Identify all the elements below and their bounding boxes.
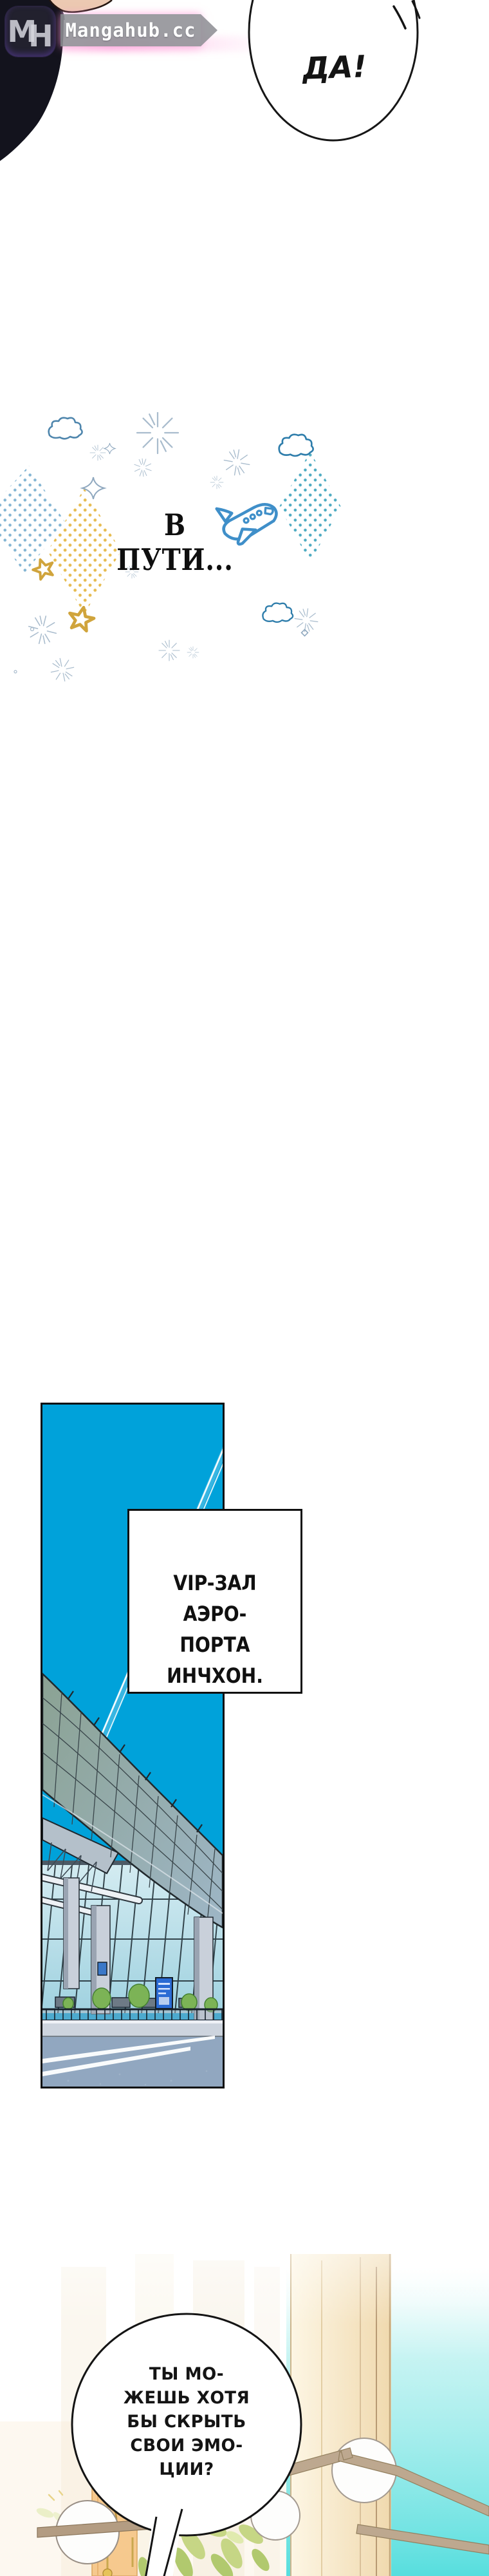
panel-caption-box: VIP-ЗАЛ АЭРО- ПОРТА ИНЧХОН. <box>127 1509 302 1694</box>
airport-scene <box>42 1405 223 2087</box>
logo-letter: H <box>28 21 53 51</box>
sparkle-doodle-icon <box>131 456 154 479</box>
manga-page: M H Mangahub.cc ДА! <box>0 0 489 2576</box>
dots-pattern-yellow <box>48 488 121 614</box>
sparkle-doodle-icon <box>187 647 199 658</box>
cloud-doodle-icon <box>279 435 313 456</box>
sparkle-doodle-icon <box>210 476 223 489</box>
cloud-doodle-icon <box>49 418 82 439</box>
star-doodle-icon <box>104 443 115 454</box>
airport-panel <box>41 1403 225 2088</box>
bubble-line: ЖЕШЬ ХОТЯ <box>80 2386 293 2410</box>
sparkle-doodle-icon <box>137 412 178 453</box>
caption-line: ПОРТА ИНЧХОН. <box>140 1629 290 1691</box>
bubble-line: СВОИ ЭМО- <box>80 2434 293 2458</box>
pendant-light-icon <box>103 2569 112 2576</box>
caption-line: VIP-ЗАЛ АЭРО- <box>140 1567 290 1629</box>
sparkle-doodle-icon <box>222 448 252 477</box>
mh-logo-icon: M H <box>5 6 55 57</box>
road <box>42 2037 223 2087</box>
site-name-text: Mangahub.cc <box>60 14 201 46</box>
transition-decorations <box>0 412 489 721</box>
bottom-bubble-text: ТЫ МО- ЖЕШЬ ХОТЯ БЫ СКРЫТЬ СВОИ ЭМО- ЦИИ… <box>80 2362 293 2481</box>
bubble-line: ЦИИ? <box>80 2458 293 2481</box>
sparkle-doodle-icon <box>90 445 106 460</box>
star-doodle-icon <box>67 605 96 632</box>
blue-sign <box>156 1978 172 2009</box>
bubble-line: ТЫ МО- <box>80 2362 293 2386</box>
dots-pattern-teal <box>279 451 341 562</box>
sparkle-doodle-icon <box>159 640 180 661</box>
site-name-badge: Mangahub.cc <box>60 14 201 46</box>
top-bubble-text: ДА! <box>282 48 387 88</box>
small-sign <box>98 1962 107 1975</box>
sparkle-doodle-icon <box>293 607 320 634</box>
transition-title: В ПУТИ... <box>115 507 235 577</box>
cloud-doodle-icon <box>263 603 293 622</box>
sparkle-doodle-icon <box>49 656 77 684</box>
bubble-line: БЫ СКРЫТЬ <box>80 2410 293 2434</box>
